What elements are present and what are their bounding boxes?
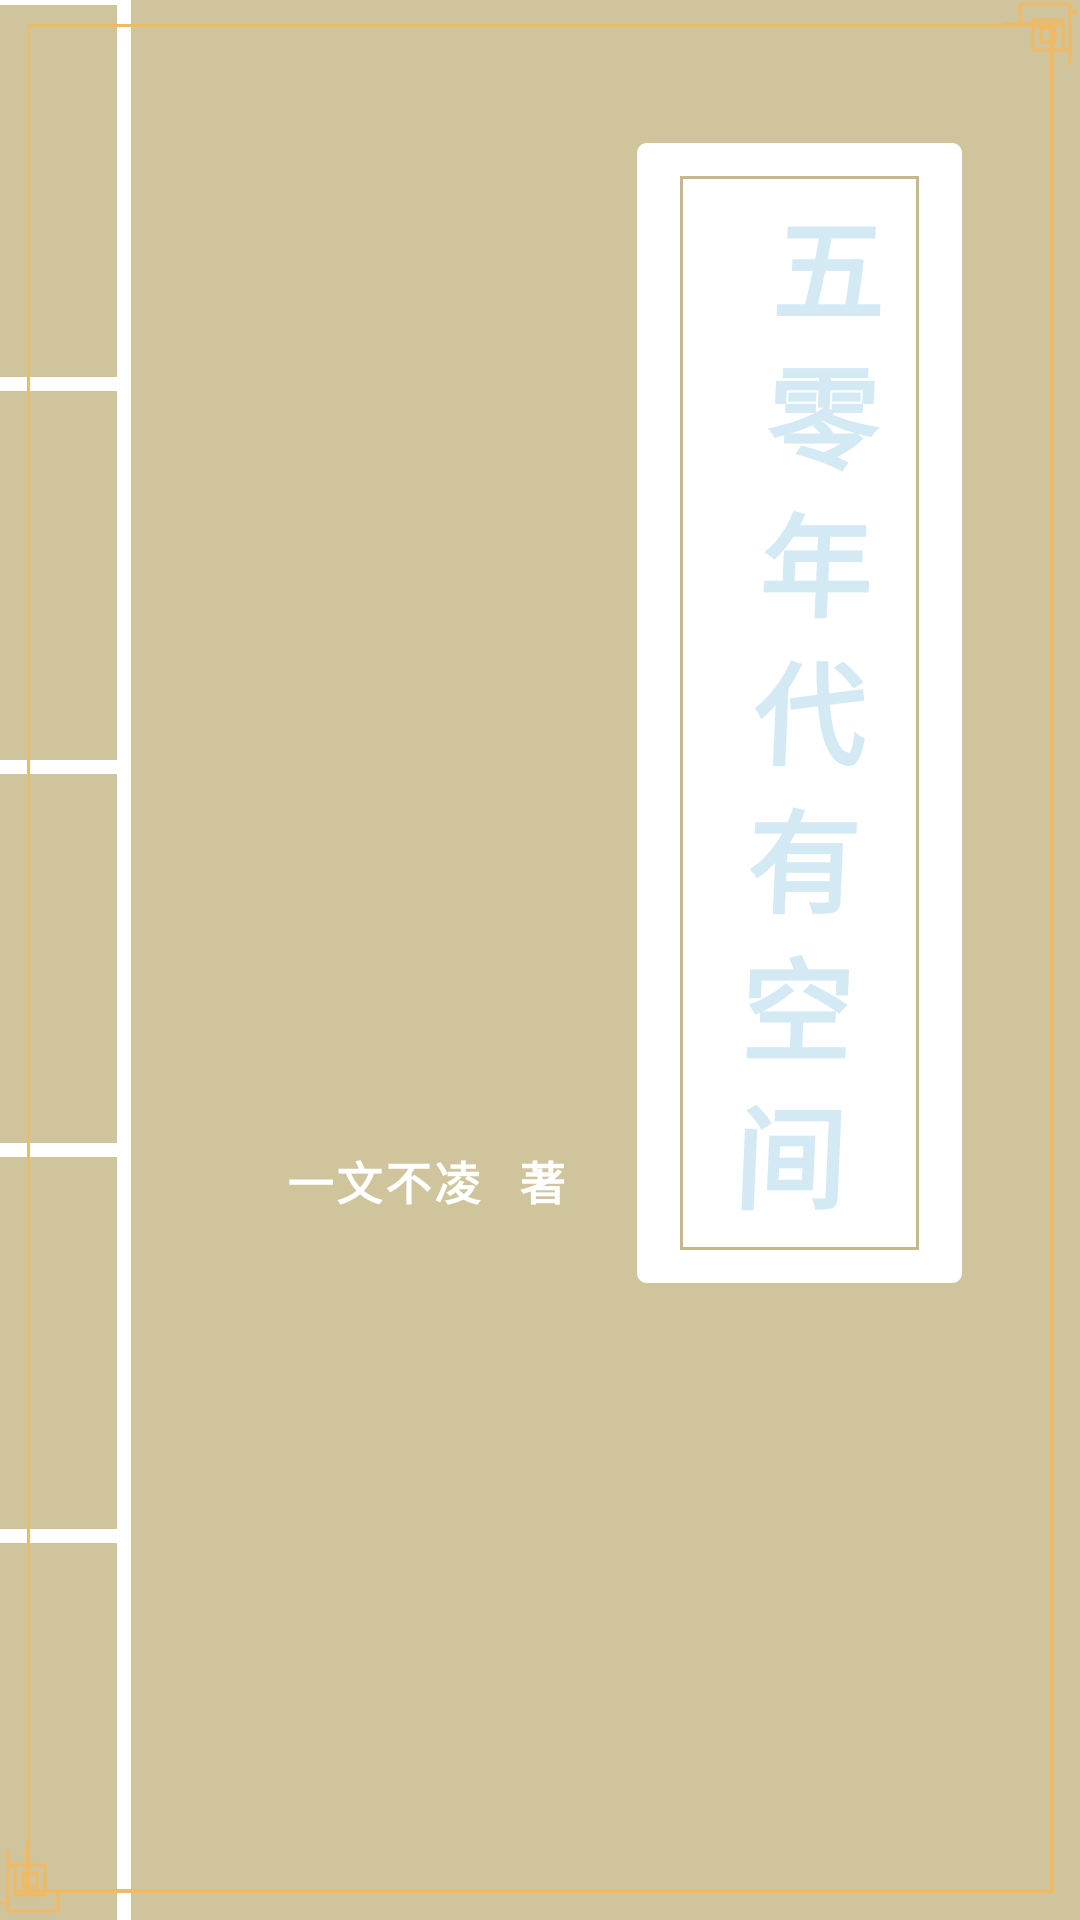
frame-border-left	[27, 24, 30, 1893]
frame-border-top	[27, 24, 1053, 27]
spine-segment-gap	[0, 377, 131, 391]
book-title: 五零年代有空间	[721, 213, 878, 1249]
book-cover: 五零年代有空间 一文不凌 著	[0, 0, 1080, 1920]
author-line: 一文不凌 著	[288, 1148, 569, 1214]
frame-border-right	[1050, 24, 1054, 1893]
spine-segment-gap	[0, 0, 131, 5]
spine-stripe	[117, 0, 131, 1920]
frame-border-bottom	[27, 1889, 1054, 1893]
fret-corner-ornament-icon	[0, 1843, 75, 1920]
title-label-box: 五零年代有空间	[637, 143, 962, 1283]
spine-segment-gap	[0, 760, 131, 774]
author-name: 一文不凌	[288, 1148, 484, 1214]
fret-corner-ornament-icon	[1003, 0, 1078, 72]
author-role: 著	[520, 1148, 569, 1214]
spine-segment-gap	[0, 1143, 131, 1157]
spine-segment-gap	[0, 1529, 131, 1543]
